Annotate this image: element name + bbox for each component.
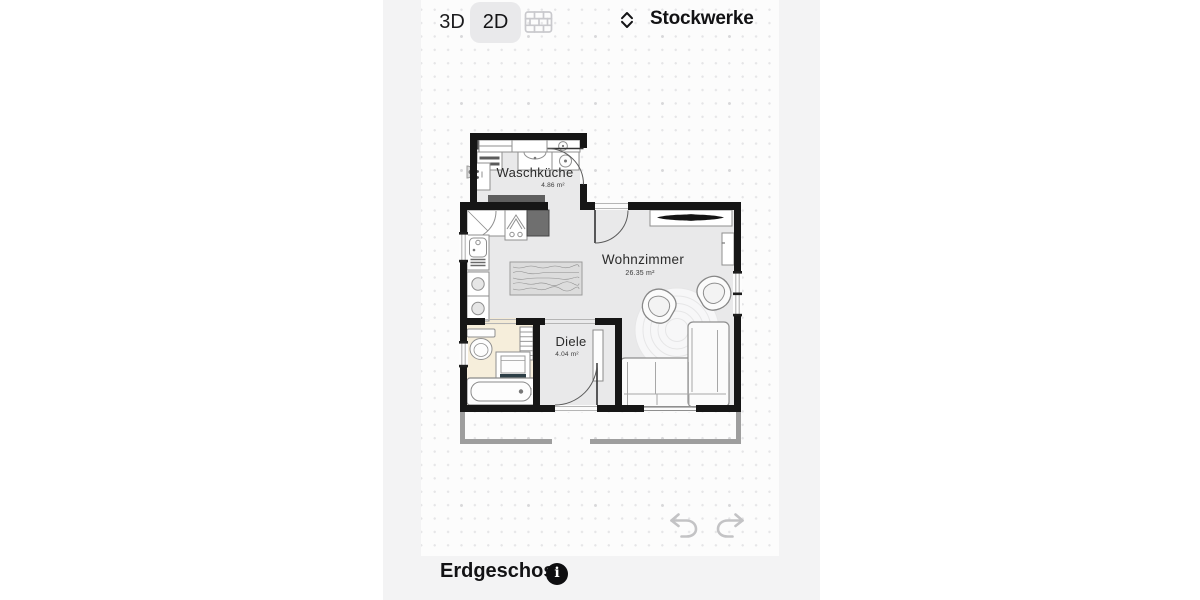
laundry-dark-counter xyxy=(488,195,545,203)
kitchen-sink xyxy=(467,235,489,270)
tv-sideboard xyxy=(650,210,732,226)
redo-button[interactable] xyxy=(714,509,748,539)
dining-table xyxy=(510,262,582,295)
view-3d-button[interactable]: 3D xyxy=(429,0,475,44)
up-down-chevrons-icon[interactable] xyxy=(616,9,638,31)
floorplanner-app: Waschküche 4.86 m² Wohnzimmer 26.35 m² D… xyxy=(383,0,820,600)
lower-floor-outline xyxy=(460,412,741,444)
stove-with-hood xyxy=(505,210,527,240)
info-icon[interactable]: i xyxy=(546,563,568,585)
floor-selector-button[interactable]: Stockwerke xyxy=(650,8,754,30)
tall-cabinet xyxy=(527,210,549,236)
bathtub xyxy=(467,378,537,405)
screenshot-stage: Waschküche 4.86 m² Wohnzimmer 26.35 m² D… xyxy=(0,0,1200,600)
floorplan[interactable] xyxy=(421,0,779,556)
view-2d-button[interactable]: 2D xyxy=(470,2,521,43)
brick-wall-icon[interactable] xyxy=(524,10,553,34)
wall-cabinet xyxy=(722,233,735,265)
undo-button[interactable] xyxy=(666,509,700,539)
kitchen-cabinets xyxy=(467,272,489,321)
open-door-leaf xyxy=(593,330,603,381)
plan-canvas[interactable]: Waschküche 4.86 m² Wohnzimmer 26.35 m² D… xyxy=(421,0,779,556)
